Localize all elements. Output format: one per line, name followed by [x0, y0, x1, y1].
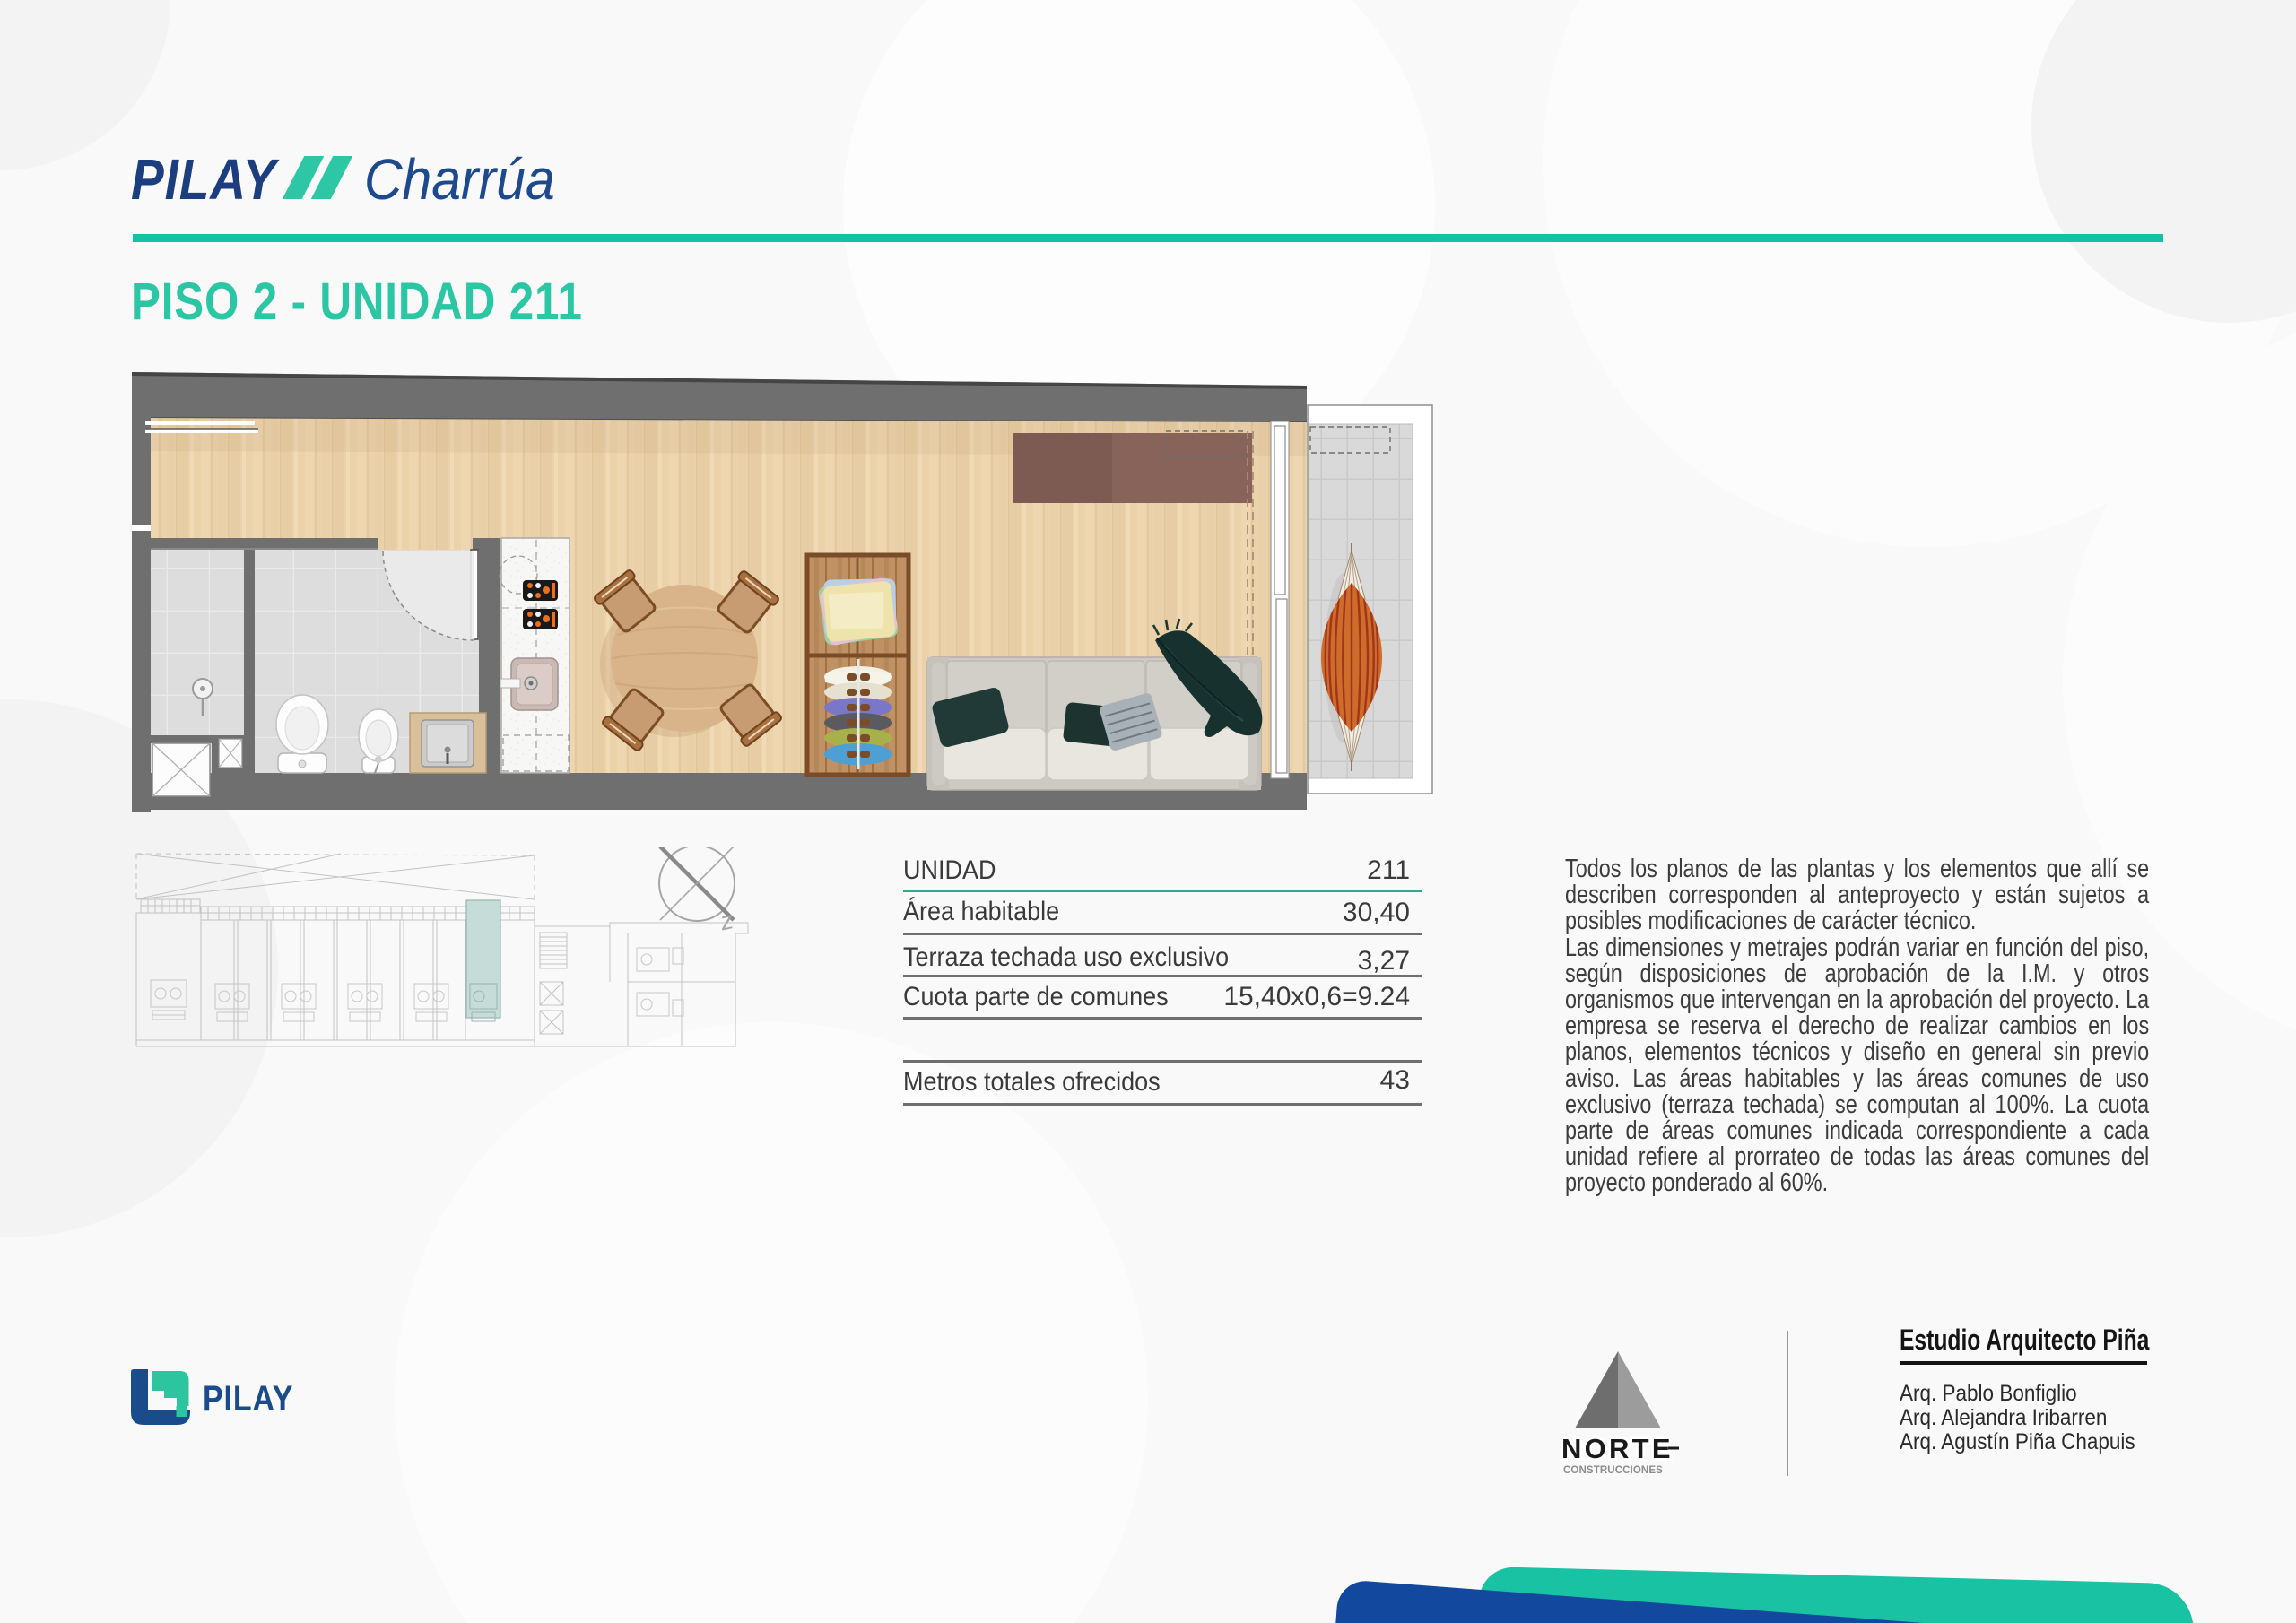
svg-text:z: z [717, 906, 735, 935]
svg-text:CONSTRUCCIONES: CONSTRUCCIONES [1563, 1465, 1665, 1476]
svg-text:NORTE: NORTE [1561, 1433, 1671, 1464]
